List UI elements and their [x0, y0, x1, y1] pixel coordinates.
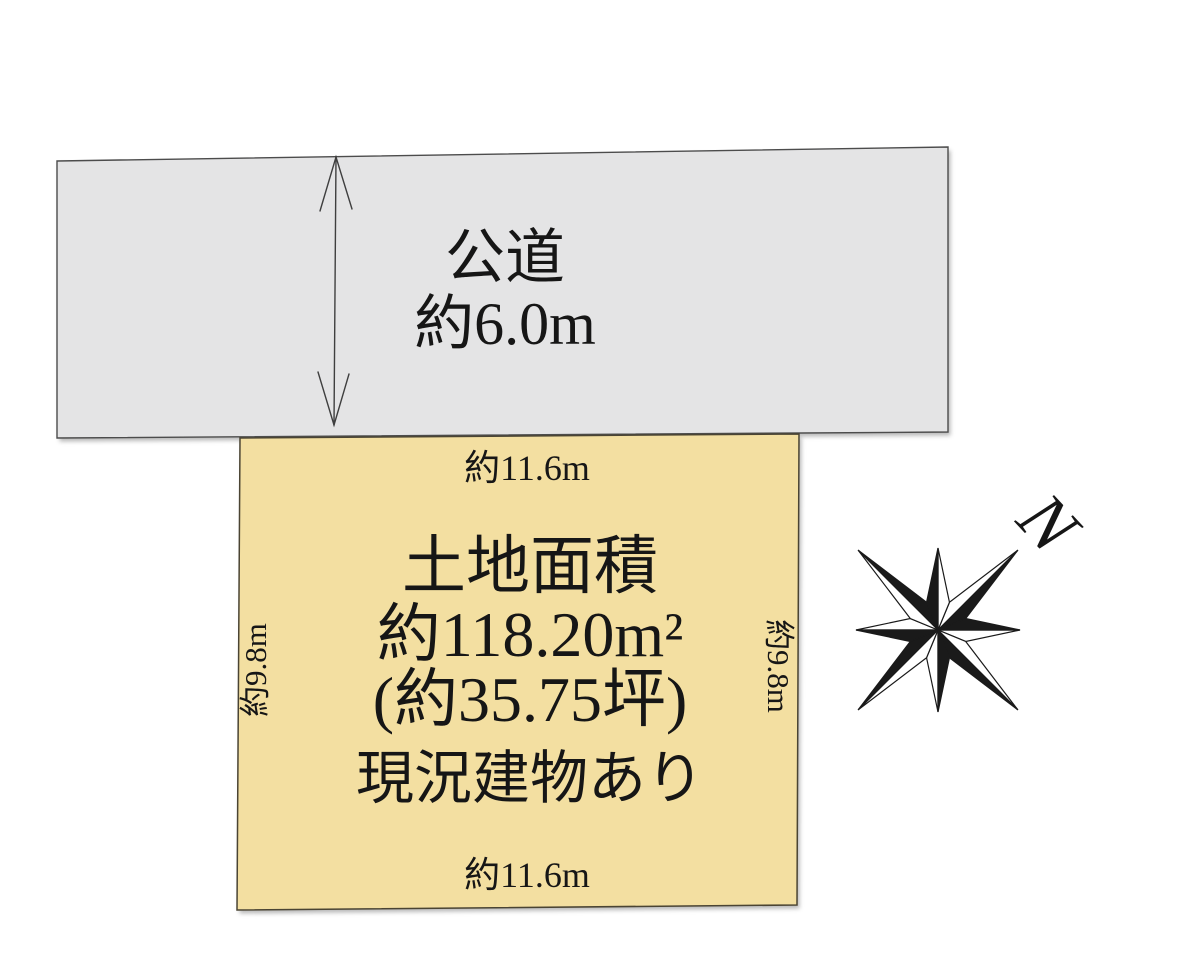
- road-width-label: 約6.0m: [414, 291, 596, 357]
- plot-right-dimension: 約9.8m: [761, 619, 796, 713]
- compass-north-label: N: [1002, 477, 1097, 570]
- plot-area-title: 土地面積: [402, 531, 658, 602]
- road-name-label: 公道: [445, 225, 565, 291]
- plot-area-tsubo: (約35.75坪): [373, 664, 688, 735]
- plot-top-dimension: 約11.6m: [464, 448, 590, 488]
- plot-bottom-dimension: 約11.6m: [464, 855, 590, 895]
- diagram-svg: 公道 約6.0m 約11.6m 約11.6m 約9.8m 約9.8m 土地面積 …: [0, 0, 1200, 953]
- land-plot-diagram: 公道 約6.0m 約11.6m 約11.6m 約9.8m 約9.8m 土地面積 …: [0, 0, 1200, 953]
- plot-area-m2: 約118.20m²: [377, 599, 684, 670]
- plot-left-dimension: 約9.8m: [238, 623, 273, 717]
- plot-status-label: 現況建物あり: [356, 746, 704, 811]
